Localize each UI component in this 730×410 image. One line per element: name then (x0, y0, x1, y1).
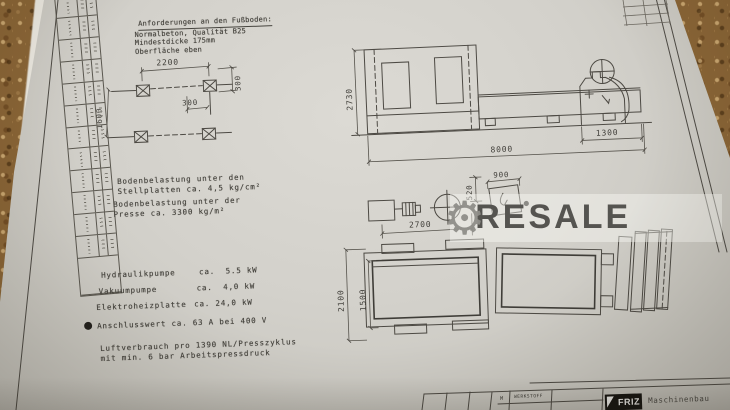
floor-requirements-note: Anforderungen an den Fußboden: Normalbet… (134, 15, 273, 56)
dim-elevation-console: 1300 (596, 128, 619, 138)
dim-plan-detail-width: 900 (493, 170, 509, 180)
spec-label: Elektroheizplatte (96, 300, 194, 313)
elevation-view: 2730 1300 8000 (343, 38, 653, 167)
friz-logo-text: FRIZ (618, 396, 640, 407)
spec-label: Hydraulikpumpe (101, 267, 199, 280)
spec-value: ca. 24,0 kW (194, 298, 253, 310)
spec-value: ca. 4,0 kW (196, 281, 255, 293)
friz-logo: FRIZ (605, 393, 643, 410)
sheet-left-edge-line (16, 0, 58, 410)
resale-watermark: ⚙ RESALE (450, 194, 722, 242)
spec-value: ca. 5.5 kW (199, 265, 258, 277)
dim-foundation-offset-v: 300 (233, 75, 243, 91)
dim-plan-platen-depth: 1500 (358, 289, 368, 312)
floor-line-3: Oberfläche eben (135, 45, 202, 55)
titleblock-m-label: M (500, 396, 503, 402)
spec-label: Vakuumpumpe (99, 283, 197, 296)
dim-plan-outer-depth: 2100 (336, 289, 346, 312)
dim-plan-press-length: 2700 (409, 220, 432, 230)
dim-foundation-width: 2200 (156, 58, 179, 68)
gear-icon: ⚙ (444, 195, 485, 241)
dim-elevation-total: 8000 (490, 144, 513, 154)
titleblock-werkstoff-label: WERKSTOFF (514, 394, 543, 400)
top-right-grid (623, 0, 670, 26)
foundation-plan: 2200 300 1600 300 (92, 55, 244, 144)
bullet-icon (84, 322, 92, 330)
watermark-text: RESALE (475, 198, 631, 237)
dim-elevation-height: 2730 (345, 88, 355, 111)
photo-scene: 2200 300 1600 300 (0, 0, 730, 410)
power-specs: Hydraulikpumpe ca. 5.5 kW Vakuumpumpe ca… (95, 265, 259, 319)
plan-view: 2700 520 900 2100 1500 (332, 164, 676, 341)
friz-logo-wedge (607, 396, 614, 407)
dim-foundation-offset-h: 300 (182, 98, 198, 108)
